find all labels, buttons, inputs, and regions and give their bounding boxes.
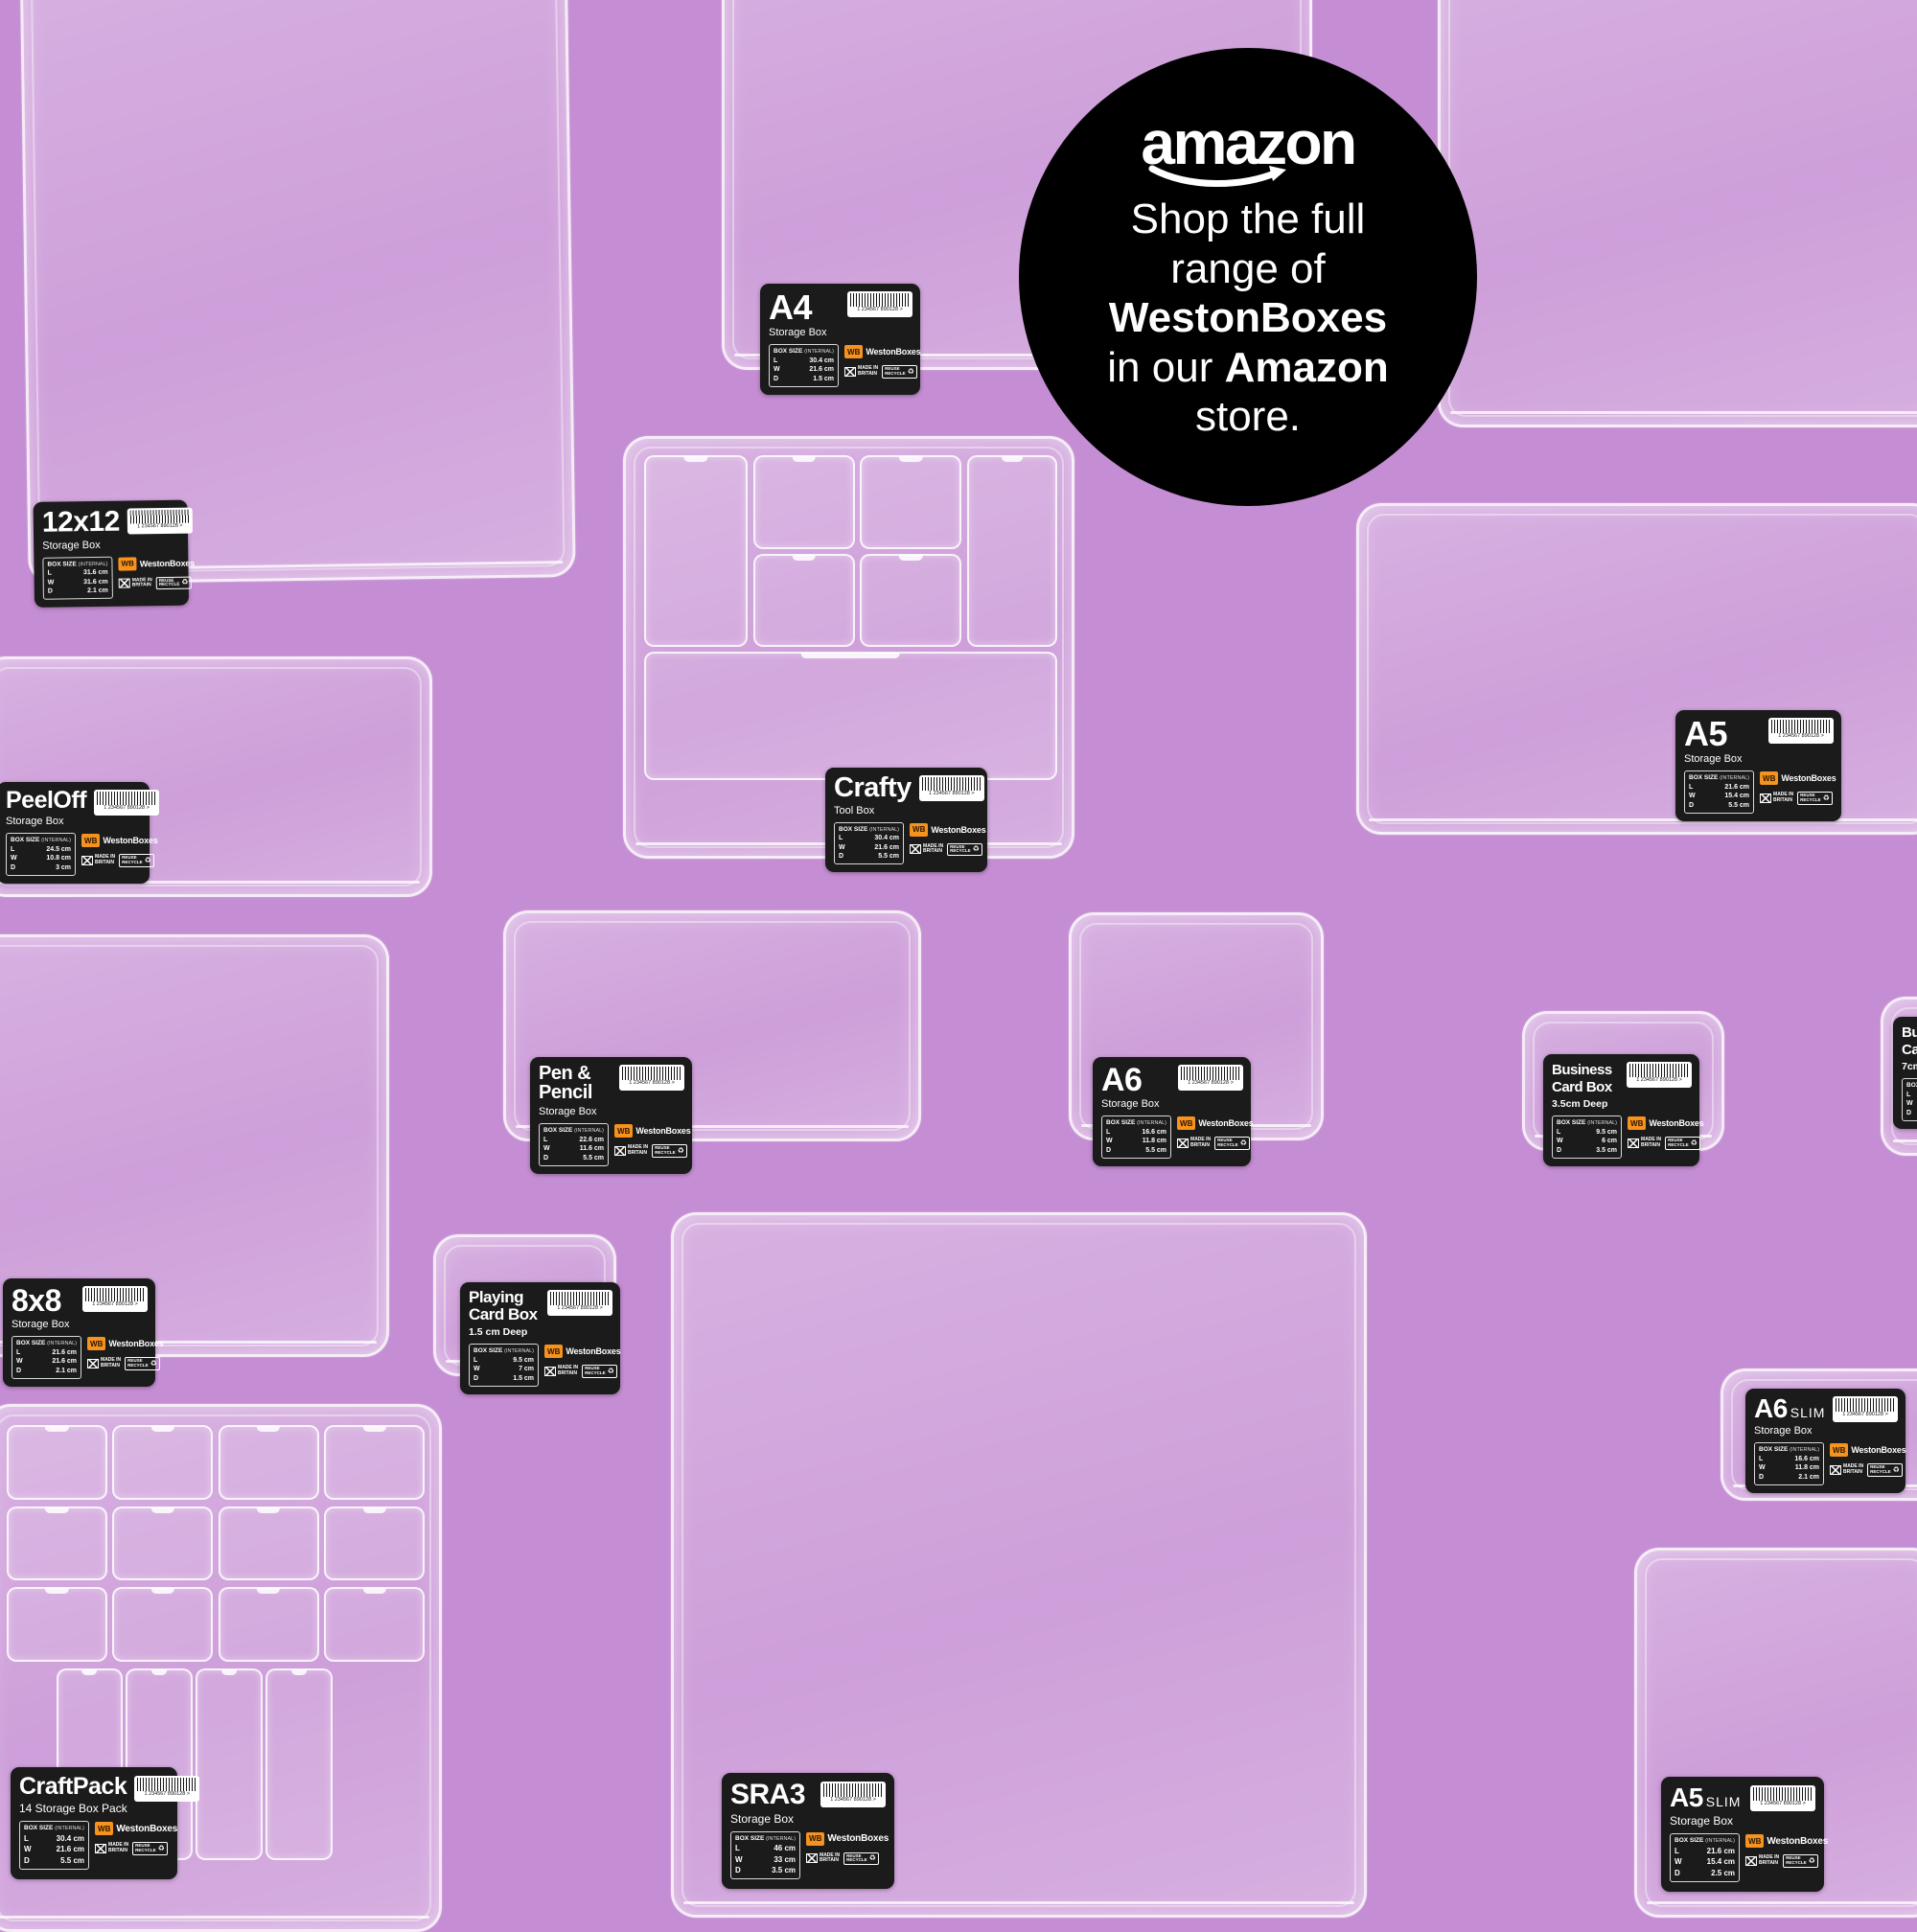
made-in-britain-text: MADE INBRITAIN xyxy=(101,1358,121,1369)
recycle-badge: REUSERECYCLE♻ xyxy=(1867,1463,1903,1477)
size-row-depth: D2.1 cm xyxy=(48,587,108,595)
product-label: 12x12 Storage Box 1 234567 890128 > BOX … xyxy=(34,500,190,608)
recycle-icon: ♻ xyxy=(678,1147,684,1155)
product-name: Crafty xyxy=(834,772,912,803)
recycle-badge: REUSERECYCLE♻ xyxy=(1665,1137,1700,1150)
compartment xyxy=(219,1425,319,1500)
britain-flag-icon xyxy=(844,367,856,377)
britain-flag-icon xyxy=(87,1359,99,1368)
size-row-length: L30.4 cm xyxy=(839,835,899,841)
label-header: A6 Storage Box 1 234567 890128 > xyxy=(1101,1065,1243,1110)
amazon-badge-line: range of xyxy=(1107,244,1388,293)
size-row-length: L16.6 cm xyxy=(1759,1456,1819,1462)
made-in-britain-badge: MADE INBRITAIN xyxy=(1830,1464,1863,1476)
westonboxes-logo-icon: WB xyxy=(806,1832,824,1846)
storage-box-a6slim: A6SLIM Storage Box 1 234567 890128 > BOX… xyxy=(1721,1368,1917,1501)
westonboxes-logo-icon: WB xyxy=(910,823,928,837)
brand-row: WB WestonBoxes xyxy=(118,556,195,570)
label-body: BOX SIZE (INTERNAL) L24.5 cm W10.8 cm D3… xyxy=(6,833,142,876)
label-body: BOX SIZE (INTERNAL) L9.5 cm W6 cm D3.5 c… xyxy=(1552,1115,1692,1159)
made-in-britain-text: MADE INBRITAIN xyxy=(1773,793,1793,804)
storage-box-peeloff: PeelOff Storage Box 1 234567 890128 > BO… xyxy=(0,656,432,897)
label-title-block: A5 Storage Box xyxy=(1684,718,1743,765)
product-label: PeelOff Storage Box 1 234567 890128 > BO… xyxy=(0,782,150,884)
made-in-britain-text: MADE INBRITAIN xyxy=(923,844,943,856)
made-in-britain-badge: MADE INBRITAIN xyxy=(1745,1855,1779,1867)
size-row-depth: D3.5 cm xyxy=(735,1866,796,1874)
box-size-table: BOX SIZE (INTERNAL) L22.6 cm W11.6 cm D5… xyxy=(539,1123,609,1166)
storage-box-crafty: Crafty Tool Box 1 234567 890128 > BOX SI… xyxy=(623,436,1074,859)
product-label: SRA3 Storage Box 1 234567 890128 > BOX S… xyxy=(722,1773,894,1889)
label-title-block: 8x8 Storage Box xyxy=(12,1286,70,1330)
box-size-table: BOX SIZE (INTERNAL) L46 cm W33 cm D3.5 c… xyxy=(730,1831,800,1880)
label-body: BOX SIZE (INTERNAL) L22.6 cm W11.6 cm D5… xyxy=(539,1123,684,1166)
barcode-number: 1 234567 890128 > xyxy=(85,1301,145,1309)
westonboxes-logo-icon: WB xyxy=(81,834,100,847)
amazon-badge-line: in our Amazon xyxy=(1107,343,1388,392)
box-size-header: BOX SIZE (INTERNAL) xyxy=(735,1835,796,1842)
brand-name: WestonBoxes xyxy=(635,1126,690,1136)
brand-column: WB WestonBoxes MADE INBRITAIN REUSERECYC… xyxy=(614,1123,690,1158)
made-in-britain-badge: MADE INBRITAIN xyxy=(1628,1138,1661,1149)
barcode: 1 234567 890128 > xyxy=(847,291,912,317)
product-name: A6 xyxy=(1101,1062,1142,1098)
size-row-length: L16.6 cm xyxy=(1106,1129,1166,1136)
westonboxes-logo-icon: WB xyxy=(118,557,137,570)
barcode-bars-icon xyxy=(97,792,156,805)
product-name: CraftPack xyxy=(19,1773,127,1800)
label-badges: MADE INBRITAIN REUSERECYCLE♻ xyxy=(87,1357,163,1370)
recycle-icon: ♻ xyxy=(869,1854,876,1862)
label-body: BOX SIZE (INTERNAL) L16.6 cm W11.8 cm D5… xyxy=(1101,1115,1243,1159)
amazon-badge: amazon Shop the fullrange ofWestonBoxesi… xyxy=(1019,48,1477,506)
label-badges: MADE INBRITAIN REUSERECYCLE♻ xyxy=(1177,1137,1253,1150)
size-row-depth: D5.5 cm xyxy=(1106,1147,1166,1154)
size-row-depth: D2.5 cm xyxy=(1674,1869,1735,1877)
product-name: Pen & Pencil xyxy=(539,1063,592,1103)
recycle-text: REUSERECYCLE xyxy=(585,1367,606,1376)
product-label: A5 Storage Box 1 234567 890128 > BOX SIZ… xyxy=(1675,710,1841,821)
size-row-width: W11.8 cm xyxy=(1106,1138,1166,1144)
barcode: 1 234567 890128 > xyxy=(1768,718,1834,744)
barcode-bars-icon xyxy=(1629,1064,1689,1077)
barcode-number: 1 234567 890128 > xyxy=(922,791,982,798)
barcode-bars-icon xyxy=(1771,720,1831,733)
size-row-width: W15.4 cm xyxy=(1689,793,1749,799)
barcode-bars-icon xyxy=(1836,1398,1895,1412)
recycle-badge: REUSERECYCLE♻ xyxy=(125,1357,160,1370)
recycle-icon: ♻ xyxy=(608,1368,614,1375)
box-size-header: BOX SIZE (INTERNAL) xyxy=(16,1340,77,1346)
britain-flag-icon xyxy=(1830,1465,1841,1475)
product-label: Playing Card Box 1.5 cm Deep 1 234567 89… xyxy=(460,1282,620,1394)
recycle-badge: REUSERECYCLE♻ xyxy=(1783,1854,1818,1868)
made-in-britain-badge: MADE INBRITAIN xyxy=(95,1843,128,1854)
size-row-width: W10.8 cm xyxy=(11,855,71,862)
label-header: SRA3 Storage Box 1 234567 890128 > xyxy=(730,1782,886,1826)
brand-name: WestonBoxes xyxy=(1767,1836,1828,1847)
brand-name: WestonBoxes xyxy=(116,1824,177,1834)
compartment xyxy=(7,1425,107,1500)
recycle-text: REUSERECYCLE xyxy=(950,845,971,855)
westonboxes-logo-icon: WB xyxy=(87,1337,105,1350)
barcode-number: 1 234567 890128 > xyxy=(130,523,190,532)
label-body: BOX SIZE (INTERNAL) L30.4 cm W21.6 cm D1… xyxy=(769,344,912,387)
label-badges: MADE INBRITAIN REUSERECYCLE♻ xyxy=(544,1365,620,1378)
size-row-length: L21.6 cm xyxy=(16,1349,77,1356)
label-title-block: Playing Card Box 1.5 cm Deep xyxy=(469,1290,543,1338)
label-badges: MADE INBRITAIN REUSERECYCLE♻ xyxy=(844,365,920,379)
compartment xyxy=(112,1506,213,1581)
brand-name: WestonBoxes xyxy=(140,558,195,568)
recycle-text: REUSERECYCLE xyxy=(127,1359,149,1368)
product-name-suffix: SLIM xyxy=(1790,1405,1826,1420)
product-subtitle: Storage Box xyxy=(1684,753,1743,765)
label-body: BOX SIZE (INTERNAL) L9.5 cm W7 cm D1.5 c… xyxy=(469,1344,612,1387)
westonboxes-logo-icon: WB xyxy=(1745,1834,1764,1848)
storage-box-biz7: Business Card Box 7cm Deep 1 234567 8901… xyxy=(1881,997,1917,1156)
barcode-bars-icon xyxy=(850,293,910,307)
made-in-britain-text: MADE INBRITAIN xyxy=(628,1145,648,1157)
size-row-width: W6 cm xyxy=(1906,1100,1917,1107)
recycle-icon: ♻ xyxy=(1809,1857,1815,1865)
compartment xyxy=(644,455,749,647)
barcode-number: 1 234567 890128 > xyxy=(1629,1077,1689,1085)
recycle-badge: REUSERECYCLE♻ xyxy=(843,1852,879,1866)
label-title-block: CraftPack 14 Storage Box Pack xyxy=(19,1776,129,1815)
size-row-width: W21.6 cm xyxy=(16,1358,77,1365)
recycle-text: REUSERECYCLE xyxy=(122,856,143,865)
brand-row: WB WestonBoxes xyxy=(1830,1443,1905,1457)
label-title-block: A6SLIM Storage Box xyxy=(1754,1396,1825,1437)
britain-flag-icon xyxy=(1177,1138,1189,1148)
size-row-length: L46 cm xyxy=(735,1844,796,1852)
brand-column: WB WestonBoxes MADE INBRITAIN REUSERECYC… xyxy=(544,1344,620,1378)
box-size-header: BOX SIZE (INTERNAL) xyxy=(1759,1446,1819,1453)
britain-flag-icon xyxy=(1760,793,1771,803)
recycle-badge: REUSERECYCLE♻ xyxy=(119,854,154,867)
box-size-table: BOX SIZE (INTERNAL) L16.6 cm W11.8 cm D2… xyxy=(1754,1442,1824,1485)
product-subtitle: Storage Box xyxy=(769,327,827,338)
made-in-britain-text: MADE INBRITAIN xyxy=(820,1853,840,1865)
compartment xyxy=(753,554,855,648)
barcode-bars-icon xyxy=(130,510,190,524)
brand-column: WB WestonBoxes MADE INBRITAIN REUSERECYC… xyxy=(118,555,195,590)
product-name: 8x8 xyxy=(12,1283,61,1318)
brand-name: WestonBoxes xyxy=(866,347,920,356)
product-name: PeelOff xyxy=(6,787,86,814)
label-body: BOX SIZE (INTERNAL) L21.6 cm W15.4 cm D5… xyxy=(1684,770,1834,814)
size-row-width: W15.4 cm xyxy=(1674,1857,1735,1866)
label-header: 8x8 Storage Box 1 234567 890128 > xyxy=(12,1286,148,1330)
recycle-text: REUSERECYCLE xyxy=(655,1146,676,1156)
size-row-length: L9.5 cm xyxy=(1557,1129,1617,1136)
box-size-header: BOX SIZE (INTERNAL) xyxy=(543,1127,604,1134)
brand-row: WB WestonBoxes xyxy=(87,1337,163,1350)
recycle-icon: ♻ xyxy=(908,368,914,376)
britain-flag-icon xyxy=(1628,1138,1639,1148)
size-row-depth: D3 cm xyxy=(11,864,71,871)
label-title-block: A4 Storage Box xyxy=(769,291,827,338)
storage-box-a5slim: A5SLIM Storage Box 1 234567 890128 > BOX… xyxy=(1634,1548,1917,1918)
compartment xyxy=(324,1425,425,1500)
product-subtitle: Storage Box xyxy=(1101,1098,1160,1110)
size-row-length: L9.5 cm xyxy=(473,1357,534,1364)
brand-row: WB WestonBoxes xyxy=(1760,771,1836,785)
label-header: A5SLIM Storage Box 1 234567 890128 > xyxy=(1670,1785,1815,1828)
product-subtitle: Storage Box xyxy=(42,539,123,551)
product-label: CraftPack 14 Storage Box Pack 1 234567 8… xyxy=(11,1767,177,1879)
recycle-badge: REUSERECYCLE♻ xyxy=(882,365,917,379)
product-depth-note: 3.5cm Deep xyxy=(1552,1098,1622,1110)
label-header: 12x12 Storage Box 1 234567 890128 > xyxy=(42,508,181,552)
product-subtitle: Storage Box xyxy=(730,1812,808,1826)
made-in-britain-text: MADE INBRITAIN xyxy=(95,855,115,866)
barcode: 1 234567 890128 > xyxy=(1750,1785,1815,1811)
size-row-width: W21.6 cm xyxy=(24,1845,84,1853)
recycle-icon: ♻ xyxy=(973,845,980,853)
compartment xyxy=(219,1506,319,1581)
box-size-header: BOX SIZE (INTERNAL) xyxy=(1674,1837,1735,1844)
product-subtitle: Storage Box xyxy=(6,816,89,827)
product-label: Business Card Box 3.5cm Deep 1 234567 89… xyxy=(1543,1054,1699,1166)
label-badges: MADE INBRITAIN REUSERECYCLE♻ xyxy=(81,854,157,867)
size-row-depth: D5.5 cm xyxy=(839,853,899,860)
brand-column: WB WestonBoxes MADE INBRITAIN REUSERECYC… xyxy=(1628,1115,1703,1150)
box-size-header: BOX SIZE (INTERNAL) xyxy=(473,1347,534,1354)
size-row-length: L9.5 cm xyxy=(1906,1092,1917,1098)
recycle-badge: REUSERECYCLE♻ xyxy=(652,1144,687,1158)
brand-column: WB WestonBoxes MADE INBRITAIN REUSERECYC… xyxy=(844,344,920,379)
recycle-text: REUSERECYCLE xyxy=(1800,793,1821,803)
brand-column: WB WestonBoxes MADE INBRITAIN REUSERECYC… xyxy=(1745,1833,1828,1868)
box-size-header: BOX SIZE (INTERNAL) xyxy=(24,1825,84,1831)
made-in-britain-text: MADE INBRITAIN xyxy=(132,578,152,589)
brand-row: WB WestonBoxes xyxy=(844,345,920,358)
label-header: Business Card Box 7cm Deep 1 234567 8901… xyxy=(1902,1024,1917,1072)
amazon-badge-line: Shop the full xyxy=(1107,195,1388,243)
compartment xyxy=(219,1587,319,1662)
barcode-number: 1 234567 890128 > xyxy=(137,1791,196,1799)
barcode-number: 1 234567 890128 > xyxy=(1771,733,1831,741)
made-in-britain-badge: MADE INBRITAIN xyxy=(844,366,878,378)
box-size-header: BOX SIZE (INTERNAL) xyxy=(1906,1082,1917,1089)
product-name: Business Card Box xyxy=(1552,1062,1612,1095)
barcode: 1 234567 890128 > xyxy=(919,775,984,801)
brand-name: WestonBoxes xyxy=(1781,773,1836,783)
recycle-icon: ♻ xyxy=(1691,1139,1698,1147)
brand-column: WB WestonBoxes MADE INBRITAIN REUSERECYC… xyxy=(95,1821,177,1855)
product-name: A6 xyxy=(1754,1393,1788,1423)
size-row-length: L30.4 cm xyxy=(774,357,834,364)
size-row-length: L21.6 cm xyxy=(1674,1847,1735,1855)
label-badges: MADE INBRITAIN REUSERECYCLE♻ xyxy=(95,1842,177,1855)
made-in-britain-badge: MADE INBRITAIN xyxy=(614,1145,648,1157)
barcode-bars-icon xyxy=(137,1778,196,1791)
recycle-text: REUSERECYCLE xyxy=(1217,1138,1238,1148)
product-label: 8x8 Storage Box 1 234567 890128 > BOX SI… xyxy=(3,1278,155,1387)
westonboxes-logo-icon: WB xyxy=(614,1124,633,1138)
product-subtitle: Storage Box xyxy=(1754,1425,1825,1437)
compartment xyxy=(753,455,855,549)
recycle-badge: REUSERECYCLE♻ xyxy=(582,1365,617,1378)
recycle-icon: ♻ xyxy=(145,857,151,864)
storage-box-biz35: Business Card Box 3.5cm Deep 1 234567 89… xyxy=(1522,1011,1724,1151)
product-name: Playing Card Box xyxy=(469,1288,538,1323)
label-badges: MADE INBRITAIN REUSERECYCLE♻ xyxy=(910,843,985,857)
brand-row: WB WestonBoxes xyxy=(1628,1116,1703,1130)
recycle-text: REUSERECYCLE xyxy=(159,578,180,587)
westonboxes-logo-icon: WB xyxy=(95,1822,113,1835)
barcode-bars-icon xyxy=(823,1783,883,1797)
barcode-number: 1 234567 890128 > xyxy=(850,307,910,314)
size-row-length: L30.4 cm xyxy=(24,1834,84,1843)
barcode-number: 1 234567 890128 > xyxy=(622,1080,681,1088)
brand-name: WestonBoxes xyxy=(1851,1445,1905,1455)
product-subtitle: 14 Storage Box Pack xyxy=(19,1802,129,1815)
boxes-layer: 12x12 Storage Box 1 234567 890128 > BOX … xyxy=(0,0,1917,1917)
made-in-britain-text: MADE INBRITAIN xyxy=(858,366,878,378)
brand-column: WB WestonBoxes MADE INBRITAIN REUSERECYC… xyxy=(81,833,157,867)
brand-column: WB WestonBoxes MADE INBRITAIN REUSERECYC… xyxy=(806,1831,889,1866)
barcode-number: 1 234567 890128 > xyxy=(823,1797,883,1805)
brand-name: WestonBoxes xyxy=(103,836,157,845)
britain-flag-icon xyxy=(806,1853,818,1863)
label-badges: MADE INBRITAIN REUSERECYCLE♻ xyxy=(1830,1463,1905,1477)
product-name: A4 xyxy=(769,287,812,327)
label-header: A5 Storage Box 1 234567 890128 > xyxy=(1684,718,1834,765)
barcode: 1 234567 890128 > xyxy=(1627,1062,1692,1088)
brand-name: WestonBoxes xyxy=(1649,1118,1703,1128)
recycle-badge: REUSERECYCLE♻ xyxy=(1214,1137,1250,1150)
recycle-text: REUSERECYCLE xyxy=(135,1844,156,1853)
label-badges: MADE INBRITAIN REUSERECYCLE♻ xyxy=(1628,1137,1703,1150)
box-size-table: BOX SIZE (INTERNAL) L30.4 cm W21.6 cm D1… xyxy=(769,344,839,387)
storage-box-b8x8: 8x8 Storage Box 1 234567 890128 > BOX SI… xyxy=(0,934,389,1357)
label-body: BOX SIZE (INTERNAL) L21.6 cm W21.6 cm D2… xyxy=(12,1336,148,1379)
size-row-depth: D2.1 cm xyxy=(16,1368,77,1374)
barcode-bars-icon xyxy=(550,1292,610,1305)
box-size-table: BOX SIZE (INTERNAL) L9.5 cm W6 cm D3.5 c… xyxy=(1552,1115,1622,1159)
amazon-smile-icon xyxy=(1146,164,1290,189)
recycle-icon: ♻ xyxy=(181,579,188,586)
barcode-number: 1 234567 890128 > xyxy=(1181,1080,1240,1088)
made-in-britain-badge: MADE INBRITAIN xyxy=(806,1853,840,1865)
label-body: BOX SIZE (INTERNAL) L16.6 cm W11.8 cm D2… xyxy=(1754,1442,1898,1485)
label-body: BOX SIZE (INTERNAL) L31.6 cm W31.6 cm D2… xyxy=(42,555,181,600)
box-size-table: BOX SIZE (INTERNAL) L30.4 cm W21.6 cm D5… xyxy=(19,1821,89,1870)
compartment xyxy=(112,1425,213,1500)
label-title-block: Business Card Box 7cm Deep xyxy=(1902,1024,1917,1072)
westonboxes-logo-icon: WB xyxy=(844,345,863,358)
compartment xyxy=(7,1587,107,1662)
label-badges: MADE INBRITAIN REUSERECYCLE♻ xyxy=(1745,1854,1828,1868)
barcode-number: 1 234567 890128 > xyxy=(1753,1801,1813,1808)
recycle-icon: ♻ xyxy=(1893,1466,1900,1474)
made-in-britain-badge: MADE INBRITAIN xyxy=(544,1366,578,1377)
size-row-width: W33 cm xyxy=(735,1855,796,1864)
size-row-width: W11.6 cm xyxy=(543,1145,604,1152)
recycle-icon: ♻ xyxy=(158,1845,165,1852)
made-in-britain-text: MADE INBRITAIN xyxy=(1759,1855,1779,1867)
storage-box-penpencil: Pen & Pencil Storage Box 1 234567 890128… xyxy=(503,910,921,1141)
product-depth-note: 7cm Deep xyxy=(1902,1061,1917,1072)
label-badges: MADE INBRITAIN REUSERECYCLE♻ xyxy=(806,1852,889,1866)
recycle-badge: REUSERECYCLE♻ xyxy=(947,843,982,857)
storage-box-tr xyxy=(1438,0,1917,427)
barcode: 1 234567 890128 > xyxy=(547,1290,612,1316)
britain-flag-icon xyxy=(614,1146,626,1156)
barcode: 1 234567 890128 > xyxy=(94,790,159,816)
westonboxes-logo-icon: WB xyxy=(1760,771,1778,785)
made-in-britain-badge: MADE INBRITAIN xyxy=(119,578,152,589)
box-size-table: BOX SIZE (INTERNAL) L21.6 cm W15.4 cm D2… xyxy=(1670,1833,1740,1882)
label-body: BOX SIZE (INTERNAL) L9.5 cm W6 cm D7 cm … xyxy=(1902,1078,1917,1121)
barcode: 1 234567 890128 > xyxy=(619,1065,684,1091)
brand-name: WestonBoxes xyxy=(1198,1118,1253,1128)
barcode: 1 234567 890128 > xyxy=(1833,1396,1898,1422)
box-size-header: BOX SIZE (INTERNAL) xyxy=(1557,1119,1617,1126)
barcode: 1 234567 890128 > xyxy=(127,508,193,535)
box-size-table: BOX SIZE (INTERNAL) L9.5 cm W6 cm D7 cm xyxy=(1902,1078,1917,1121)
label-title-block: A6 Storage Box xyxy=(1101,1065,1160,1110)
label-title-block: 12x12 Storage Box xyxy=(42,509,124,552)
box-size-header: BOX SIZE (INTERNAL) xyxy=(47,560,107,567)
recycle-badge: REUSERECYCLE♻ xyxy=(156,576,192,589)
brand-column: WB WestonBoxes MADE INBRITAIN REUSERECYC… xyxy=(87,1336,163,1370)
made-in-britain-badge: MADE INBRITAIN xyxy=(81,855,115,866)
box-size-table: BOX SIZE (INTERNAL) L21.6 cm W21.6 cm D2… xyxy=(12,1336,81,1379)
product-label: A6 Storage Box 1 234567 890128 > BOX SIZ… xyxy=(1093,1057,1251,1166)
label-body: BOX SIZE (INTERNAL) L30.4 cm W21.6 cm D5… xyxy=(834,822,980,865)
size-row-depth: D1.5 cm xyxy=(473,1375,534,1382)
label-header: Playing Card Box 1.5 cm Deep 1 234567 89… xyxy=(469,1290,612,1338)
brand-name: WestonBoxes xyxy=(827,1833,889,1844)
product-name: Business Card Box xyxy=(1902,1024,1917,1058)
product-name: SRA3 xyxy=(730,1779,805,1810)
label-title-block: Business Card Box 3.5cm Deep xyxy=(1552,1062,1622,1110)
amazon-badge-line: store. xyxy=(1107,392,1388,441)
amazon-logo: amazon xyxy=(1141,112,1354,173)
storage-box-b12x12: 12x12 Storage Box 1 234567 890128 > BOX … xyxy=(19,0,575,585)
barcode-bars-icon xyxy=(622,1067,681,1080)
box-size-header: BOX SIZE (INTERNAL) xyxy=(1106,1119,1166,1126)
recycle-text: REUSERECYCLE xyxy=(885,367,906,377)
westonboxes-logo-icon: WB xyxy=(544,1345,563,1358)
britain-flag-icon xyxy=(81,856,93,865)
barcode-bars-icon xyxy=(1181,1067,1240,1080)
product-label: Pen & Pencil Storage Box 1 234567 890128… xyxy=(530,1057,692,1174)
britain-flag-icon xyxy=(95,1844,106,1853)
label-body: BOX SIZE (INTERNAL) L21.6 cm W15.4 cm D2… xyxy=(1670,1833,1815,1882)
label-title-block: SRA3 Storage Box xyxy=(730,1782,808,1826)
compartment xyxy=(967,455,1058,647)
barcode: 1 234567 890128 > xyxy=(820,1782,886,1807)
recycle-icon: ♻ xyxy=(1240,1139,1247,1147)
barcode-bars-icon xyxy=(85,1288,145,1301)
product-name: A5 xyxy=(1684,714,1727,753)
label-badges: MADE INBRITAIN REUSERECYCLE♻ xyxy=(614,1144,690,1158)
brand-row: WB WestonBoxes xyxy=(614,1124,690,1138)
product-label: A4 Storage Box 1 234567 890128 > BOX SIZ… xyxy=(760,284,920,395)
amazon-badge-line: WestonBoxes xyxy=(1107,293,1388,342)
storage-box-playing: Playing Card Box 1.5 cm Deep 1 234567 89… xyxy=(433,1234,616,1376)
westonboxes-logo-icon: WB xyxy=(1830,1443,1848,1457)
brand-row: WB WestonBoxes xyxy=(1177,1116,1253,1130)
product-depth-note: 1.5 cm Deep xyxy=(469,1326,543,1338)
barcode: 1 234567 890128 > xyxy=(82,1286,148,1312)
made-in-britain-badge: MADE INBRITAIN xyxy=(910,844,943,856)
